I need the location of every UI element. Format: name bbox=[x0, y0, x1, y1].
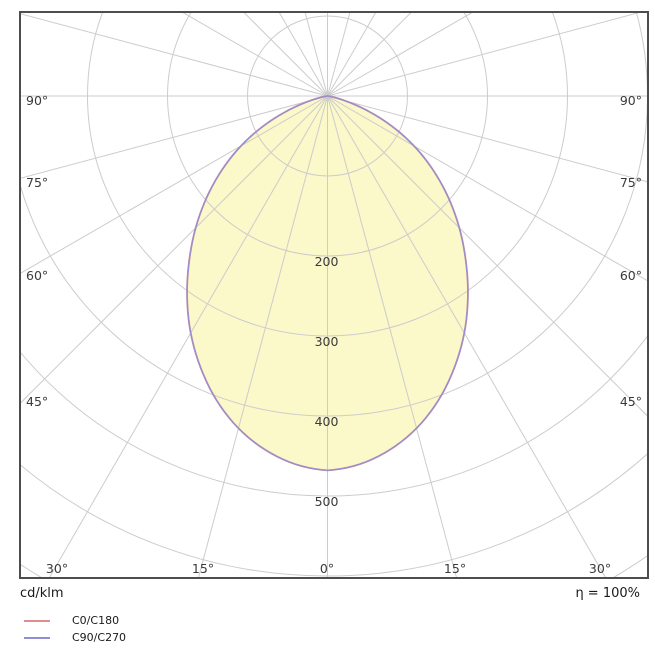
grid-radial-225 bbox=[0, 0, 328, 96]
legend-item-c90-c270: C90/C270 bbox=[24, 629, 126, 646]
polar-grid bbox=[0, 0, 655, 655]
angle-label-right-75°: 75° bbox=[620, 175, 642, 190]
angle-label-bottom-1-15°: 15° bbox=[192, 561, 214, 576]
grid-radial-120 bbox=[328, 0, 655, 96]
ring-label-200: 200 bbox=[315, 254, 339, 269]
grid-radial-195 bbox=[95, 0, 328, 96]
angle-label-left-45°: 45° bbox=[26, 394, 48, 409]
angle-label-bottom-3-15°: 15° bbox=[444, 561, 466, 576]
grid-radial-105 bbox=[328, 0, 655, 96]
efficiency-label: η = 100% bbox=[575, 586, 640, 601]
grid-radial-165 bbox=[328, 0, 561, 96]
angle-label-bottom-4-30°: 30° bbox=[589, 561, 611, 576]
polar-chart: 20030040050090°90°75°75°60°60°45°45°30°1… bbox=[0, 0, 655, 655]
angle-label-left-90°: 90° bbox=[26, 93, 48, 108]
legend: C0/C180 C90/C270 bbox=[24, 612, 126, 646]
legend-label-c0-c180: C0/C180 bbox=[72, 614, 119, 627]
angle-label-bottom-2-0°: 0° bbox=[320, 561, 334, 576]
legend-item-c0-c180: C0/C180 bbox=[24, 612, 126, 629]
angle-label-right-60°: 60° bbox=[620, 268, 642, 283]
angle-label-left-75°: 75° bbox=[26, 175, 48, 190]
grid-radial-240 bbox=[0, 0, 328, 96]
angle-label-right-45°: 45° bbox=[620, 394, 642, 409]
grid-radial-255 bbox=[0, 0, 328, 96]
ring-label-500: 500 bbox=[315, 494, 339, 509]
ring-label-400: 400 bbox=[315, 414, 339, 429]
unit-label: cd/klm bbox=[20, 586, 64, 601]
grid-radial-210 bbox=[0, 0, 328, 96]
angle-label-right-90°: 90° bbox=[620, 93, 642, 108]
photometric-diagram: 20030040050090°90°75°75°60°60°45°45°30°1… bbox=[0, 0, 655, 655]
ring-label-300: 300 bbox=[315, 334, 339, 349]
grid-radial-135 bbox=[328, 0, 655, 96]
chart-footer: cd/klm η = 100% bbox=[20, 586, 640, 602]
angle-label-bottom-0-30°: 30° bbox=[46, 561, 68, 576]
grid-radial-150 bbox=[328, 0, 655, 96]
c90-c270-line-swatch bbox=[24, 637, 50, 639]
c0-c180-line-swatch bbox=[24, 620, 50, 622]
legend-label-c90-c270: C90/C270 bbox=[72, 631, 126, 644]
angle-label-left-60°: 60° bbox=[26, 268, 48, 283]
